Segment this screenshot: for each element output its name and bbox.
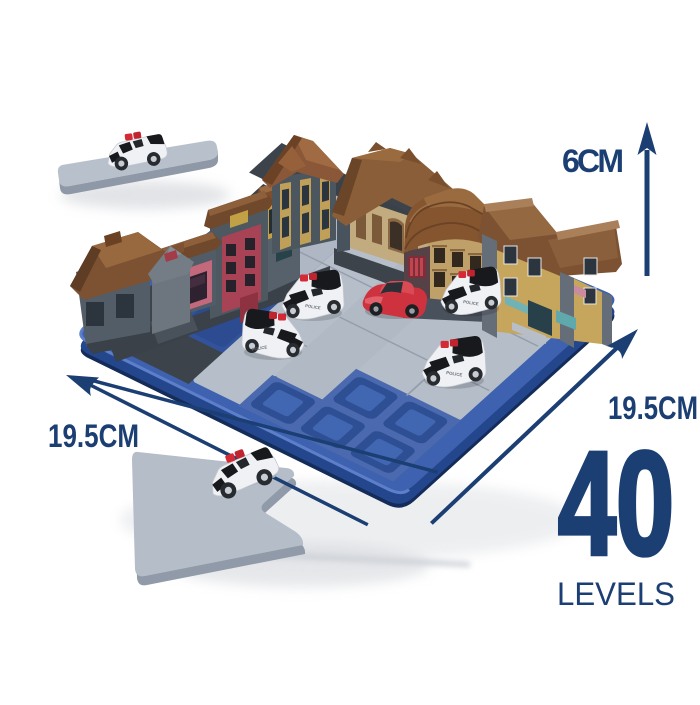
svg-text:6CM: 6CM [562,143,624,179]
svg-text:19.5CM: 19.5CM [608,390,698,426]
svg-text:19.5CM: 19.5CM [48,418,139,454]
svg-text:40: 40 [558,423,674,587]
svg-text:LEVELS: LEVELS [557,576,675,612]
